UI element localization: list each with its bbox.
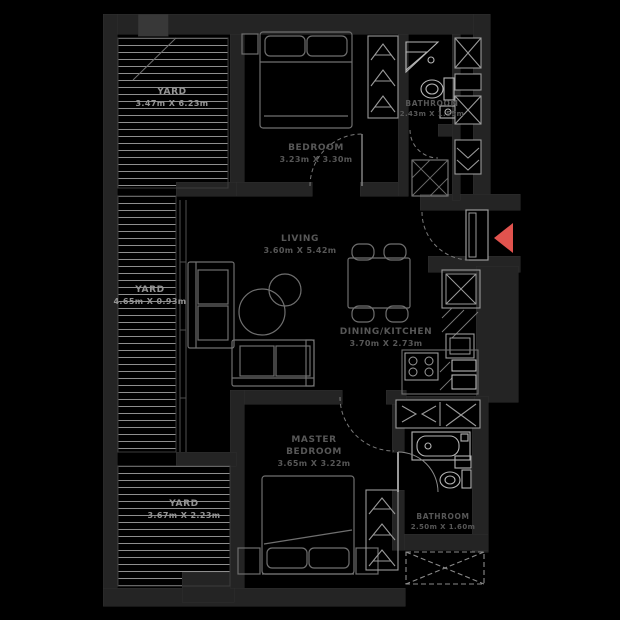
window-wall <box>180 200 186 452</box>
sink <box>455 456 471 468</box>
cabinet-hatch <box>412 160 448 196</box>
room-name: DINING/KITCHEN <box>340 326 433 338</box>
dining-kitchen-label: DINING/KITCHEN 3.70m X 2.73m <box>340 326 433 350</box>
bed-pillow <box>267 548 307 568</box>
room-dims: 4.65m X 0.93m <box>113 296 186 308</box>
living-label: LIVING 3.60m X 5.42m <box>263 233 336 257</box>
room-name: MASTER <box>277 434 350 446</box>
wall-segment <box>182 572 234 602</box>
yard-top-outline <box>118 38 228 188</box>
stove <box>405 353 438 380</box>
wall-vent <box>452 360 476 371</box>
wall-segment <box>103 14 117 606</box>
shaft-x-icon <box>446 274 476 304</box>
hanger-icon <box>371 96 395 112</box>
wall-segment <box>230 182 312 196</box>
wardrobe-box <box>368 36 398 118</box>
shower-drain <box>428 57 434 63</box>
sofa-vertical <box>188 262 234 348</box>
toilet-bowl-inner <box>426 84 438 94</box>
room-name: YARD <box>113 284 186 296</box>
sofa-cushion <box>276 346 310 376</box>
yard-top-label: YARD 3.47m X 6.23m <box>135 86 208 110</box>
bedroom-label: BEDROOM 3.23m X 3.30m <box>279 142 352 166</box>
room-name: LIVING <box>263 233 336 245</box>
stove-burner <box>425 368 433 376</box>
bed-pillow <box>309 548 349 568</box>
wall-segment <box>232 390 342 404</box>
room-dims: 3.65m X 3.22m <box>277 458 350 470</box>
bathroom-top-label: BATHROOM 2.43m X 1.55m <box>400 98 465 120</box>
room-name: BEDROOM <box>279 142 352 154</box>
room-name: YARD <box>135 86 208 98</box>
yard-mid-outline <box>118 196 176 452</box>
sofa-horizontal <box>232 340 314 386</box>
bed-pillow <box>307 36 347 56</box>
hanger-icon <box>371 70 395 86</box>
hanger-icon <box>371 44 395 60</box>
room-dims: 3.47m X 6.23m <box>135 98 208 110</box>
stove-burner <box>409 368 417 376</box>
wardrobe-top <box>368 36 398 118</box>
bathtub-faucet <box>461 434 468 441</box>
louvre-strip <box>396 400 480 428</box>
bathtub-drain <box>425 443 431 449</box>
coffee-table-small <box>269 274 301 306</box>
bathroom-bottom-fixtures <box>398 432 471 492</box>
toilet-bowl-inner <box>445 476 455 484</box>
kitchen-sink-basin <box>450 338 470 354</box>
room-name: YARD <box>147 498 220 510</box>
yard-mid-label: YARD 4.65m X 0.93m <box>113 284 186 308</box>
hanger-icon <box>369 498 395 514</box>
toilet-bowl <box>421 80 443 98</box>
bathroom-door-arc <box>398 452 438 492</box>
room-dims: 2.43m X 1.55m <box>400 109 465 120</box>
ac-unit-x-icon <box>406 552 484 584</box>
hanger-icon <box>369 524 395 540</box>
bed <box>260 32 352 128</box>
wall-segment <box>230 34 244 196</box>
floor-plan: YARD 3.47m X 6.23m YARD 4.65m X 0.93m YA… <box>0 0 620 620</box>
room-name: BATHROOM <box>411 511 476 522</box>
bed-pillow <box>265 36 305 56</box>
room-dims: 3.60m X 5.42m <box>263 245 336 257</box>
wall-segment <box>476 266 518 402</box>
shower-inner <box>406 52 427 70</box>
room-dims: 2.50m X 1.60m <box>411 522 476 533</box>
bathtub-inner <box>417 436 459 456</box>
wall-segment <box>230 390 244 588</box>
room-dims: 3.70m X 2.73m <box>340 338 433 350</box>
master-bedroom-label: MASTER BEDROOM 3.65m X 3.22m <box>277 434 350 470</box>
toilet-tank <box>462 470 471 488</box>
yard-bottom-label: YARD 3.67m X 2.23m <box>147 498 220 522</box>
bed-blanket-fold <box>264 530 352 544</box>
sofa-cushion <box>198 306 228 340</box>
entry-arrow-icon <box>494 223 513 253</box>
wall-vent <box>452 375 476 389</box>
yard-bottom-outline <box>118 466 230 586</box>
wall-segment <box>176 452 236 466</box>
bathroom-top-door-arc <box>410 130 438 158</box>
bed <box>262 476 354 574</box>
room-name: BEDROOM <box>277 446 350 458</box>
sofa-cushion <box>198 270 228 304</box>
louvre-box <box>455 140 481 174</box>
stove-burner <box>409 357 417 365</box>
wall-segment <box>392 534 488 550</box>
louvre-box <box>396 400 480 428</box>
dining-furniture <box>348 244 410 322</box>
column-block <box>138 14 168 36</box>
bathroom-bottom-label: BATHROOM 2.50m X 1.60m <box>411 511 476 533</box>
counter-hatch <box>440 362 452 390</box>
living-furniture <box>188 262 314 386</box>
master-bedroom <box>238 397 398 574</box>
sofa-cushion <box>240 346 274 376</box>
stove-burner <box>425 357 433 365</box>
yard-door-swing-line <box>133 38 176 80</box>
nightstand <box>242 34 258 54</box>
room-name: BATHROOM <box>400 98 465 109</box>
entry <box>422 210 513 260</box>
toilet-bowl <box>440 472 460 488</box>
dining-table <box>348 258 410 308</box>
bedroom-furniture <box>242 32 352 128</box>
hanger-icon <box>369 550 395 566</box>
wall-segment <box>103 588 405 606</box>
shaft-box <box>455 74 481 90</box>
room-dims: 3.23m X 3.30m <box>279 154 352 166</box>
entry-door-arc <box>422 212 470 260</box>
room-dims: 3.67m X 2.23m <box>147 510 220 522</box>
coffee-table <box>239 289 285 335</box>
wall-segment <box>176 182 236 196</box>
ac-unit <box>406 552 484 584</box>
floor-plan-svg <box>0 0 620 620</box>
